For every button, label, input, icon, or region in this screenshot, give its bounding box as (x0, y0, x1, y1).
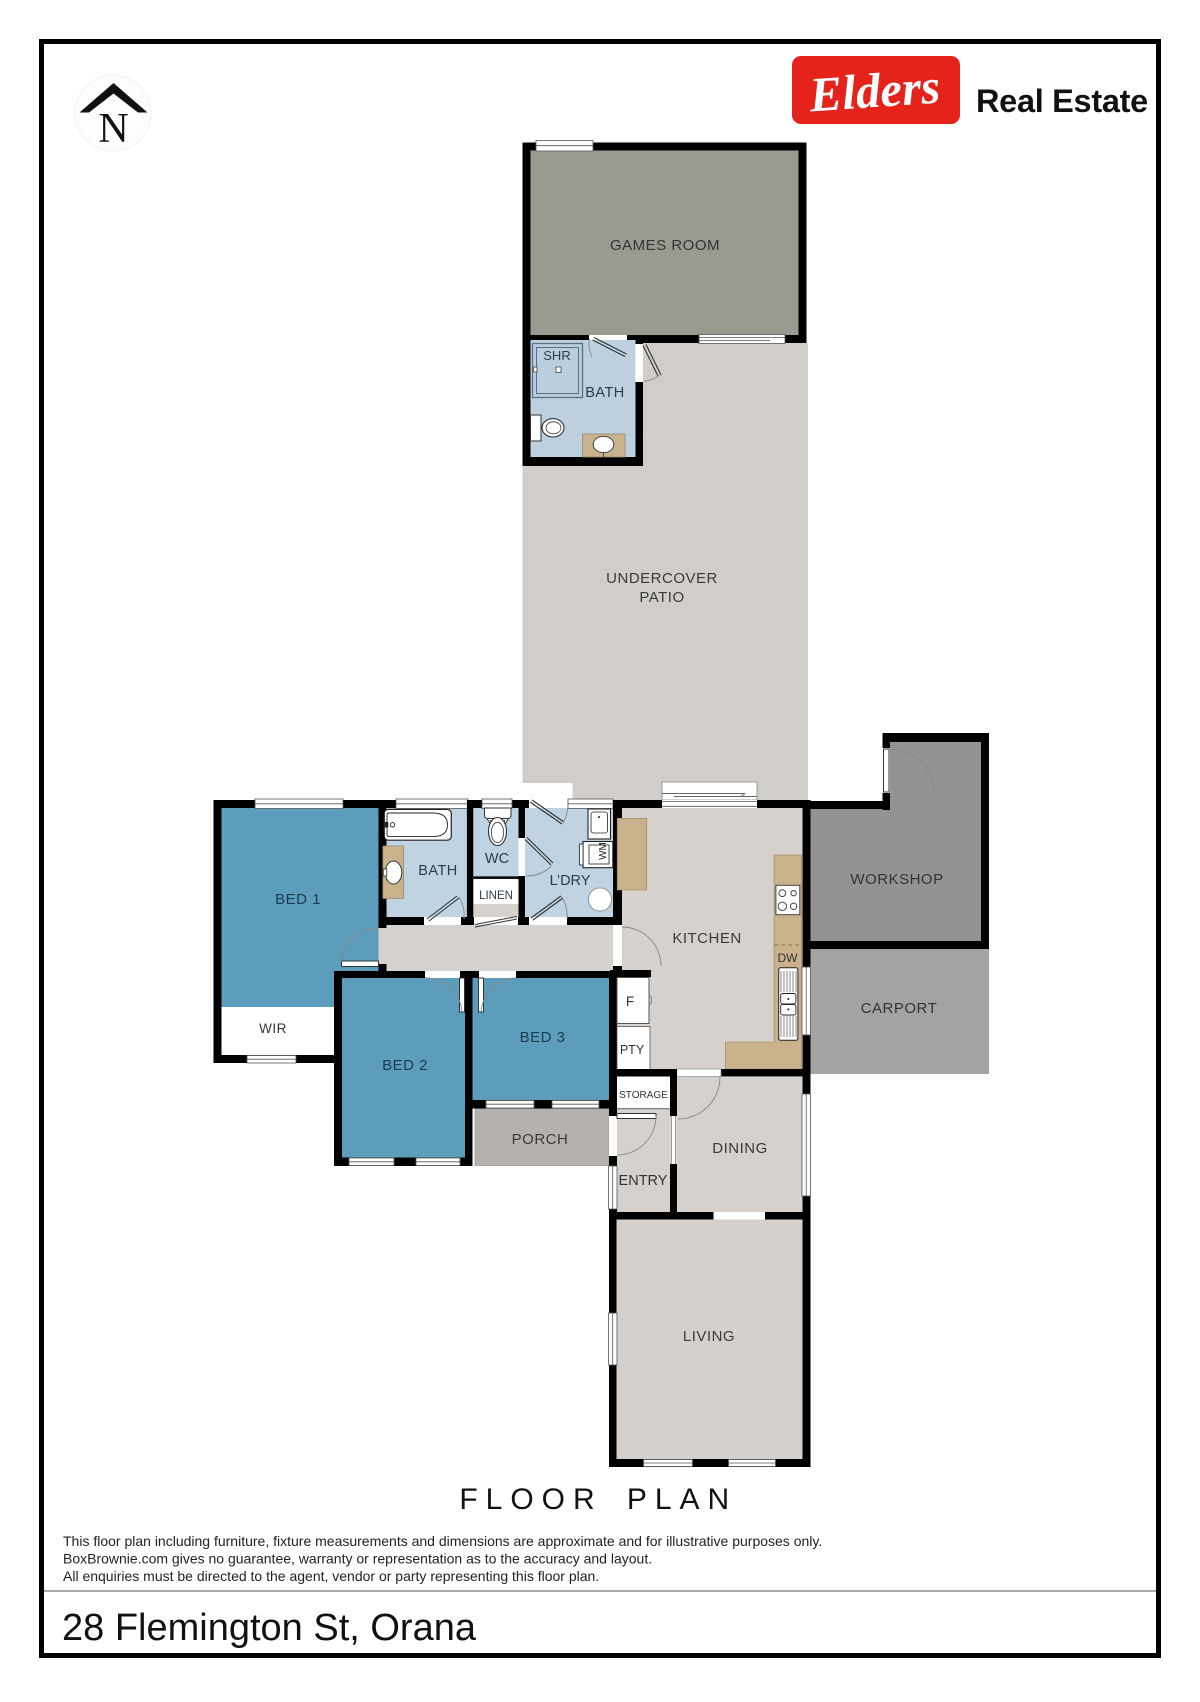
svg-text:WM: WM (598, 842, 609, 860)
svg-text:Real Estate: Real Estate (976, 83, 1148, 119)
svg-text:DW: DW (778, 951, 799, 965)
svg-text:SHR: SHR (543, 348, 570, 363)
svg-text:BoxBrownie.com gives no guaran: BoxBrownie.com gives no guarantee, warra… (63, 1551, 652, 1567)
svg-text:WC: WC (485, 851, 509, 867)
svg-text:All enquiries must be directed: All enquiries must be directed to the ag… (63, 1568, 599, 1584)
svg-text:GAMES ROOM: GAMES ROOM (610, 237, 720, 254)
svg-text:STORAGE: STORAGE (619, 1090, 668, 1101)
svg-text:N: N (98, 106, 128, 152)
svg-text:PLAN: PLAN (627, 1483, 737, 1516)
svg-text:WIR: WIR (259, 1021, 287, 1036)
svg-text:PTY: PTY (620, 1043, 645, 1057)
svg-text:BED 3: BED 3 (520, 1029, 566, 1046)
svg-text:UNDERCOVER: UNDERCOVER (606, 570, 718, 587)
svg-text:WORKSHOP: WORKSHOP (850, 871, 943, 888)
svg-text:PATIO: PATIO (639, 589, 684, 606)
svg-text:BED 2: BED 2 (382, 1057, 428, 1074)
svg-text:L’DRY: L’DRY (550, 873, 591, 889)
svg-text:LINEN: LINEN (479, 890, 513, 902)
svg-text:28 Flemington St, Orana: 28 Flemington St, Orana (62, 1607, 477, 1649)
svg-text:Elders: Elders (807, 59, 942, 123)
svg-text:BATH: BATH (585, 385, 625, 401)
svg-text:DINING: DINING (712, 1140, 768, 1157)
svg-text:FLOOR: FLOOR (459, 1483, 602, 1516)
svg-text:LIVING: LIVING (683, 1328, 735, 1345)
svg-text:PORCH: PORCH (512, 1131, 569, 1148)
svg-text:This floor plan including furn: This floor plan including furniture, fix… (63, 1533, 822, 1549)
svg-text:ENTRY: ENTRY (619, 1173, 668, 1189)
svg-text:BED 1: BED 1 (275, 891, 321, 908)
svg-text:CARPORT: CARPORT (861, 1000, 938, 1017)
svg-text:BATH: BATH (418, 863, 458, 879)
svg-text:KITCHEN: KITCHEN (672, 930, 741, 947)
svg-text:F: F (626, 994, 634, 1009)
